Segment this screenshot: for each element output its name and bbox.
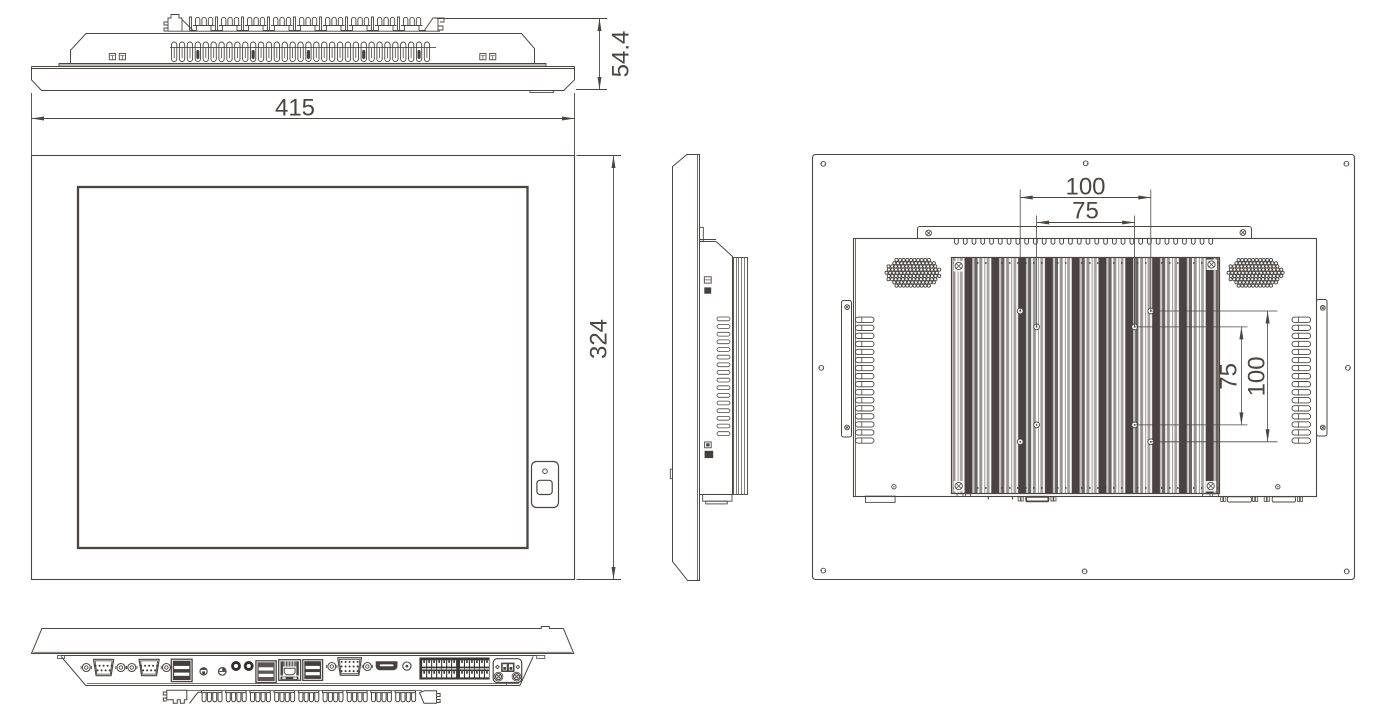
svg-text:75: 75 xyxy=(1216,363,1243,390)
svg-text:75: 75 xyxy=(1072,198,1099,225)
svg-text:54.4: 54.4 xyxy=(608,31,635,78)
svg-text:100: 100 xyxy=(1244,356,1271,396)
svg-text:415: 415 xyxy=(275,95,315,122)
svg-text:100: 100 xyxy=(1065,173,1105,200)
svg-text:324: 324 xyxy=(586,319,613,359)
